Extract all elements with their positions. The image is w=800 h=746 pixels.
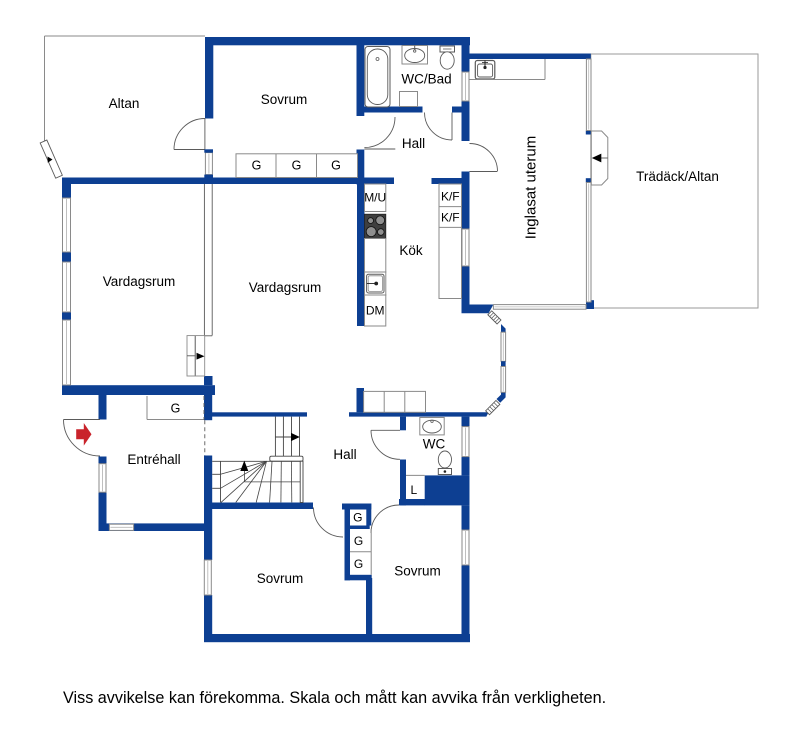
svg-text:G: G <box>292 159 302 173</box>
svg-text:Trädäck/Altan: Trädäck/Altan <box>636 169 719 184</box>
svg-text:G: G <box>171 402 181 416</box>
svg-text:G: G <box>353 511 362 525</box>
svg-text:WC: WC <box>423 437 446 452</box>
svg-text:Kök: Kök <box>399 243 423 258</box>
svg-text:K/F: K/F <box>441 210 460 224</box>
svg-text:Sovrum: Sovrum <box>257 571 304 586</box>
svg-text:Hall: Hall <box>333 447 356 462</box>
svg-text:G: G <box>354 534 363 548</box>
svg-text:Inglasat uterum: Inglasat uterum <box>523 136 540 239</box>
svg-text:Viss avvikelse kan förekomma.: Viss avvikelse kan förekomma. Skala och … <box>63 689 606 707</box>
svg-text:G: G <box>354 557 363 571</box>
svg-text:M/U: M/U <box>364 191 386 205</box>
svg-text:Entréhall: Entréhall <box>127 452 180 467</box>
svg-text:DM: DM <box>366 304 385 318</box>
svg-text:Vardagsrum: Vardagsrum <box>249 280 322 295</box>
svg-text:Sovrum: Sovrum <box>261 92 308 107</box>
svg-text:L: L <box>410 483 417 497</box>
svg-text:G: G <box>331 159 341 173</box>
svg-text:Sovrum: Sovrum <box>394 564 441 579</box>
svg-text:G: G <box>252 159 262 173</box>
svg-text:Vardagsrum: Vardagsrum <box>103 274 176 289</box>
svg-text:Hall: Hall <box>402 136 425 151</box>
svg-text:WC/Bad: WC/Bad <box>401 72 451 87</box>
svg-text:K/F: K/F <box>441 190 460 204</box>
svg-text:Altan: Altan <box>109 96 140 111</box>
